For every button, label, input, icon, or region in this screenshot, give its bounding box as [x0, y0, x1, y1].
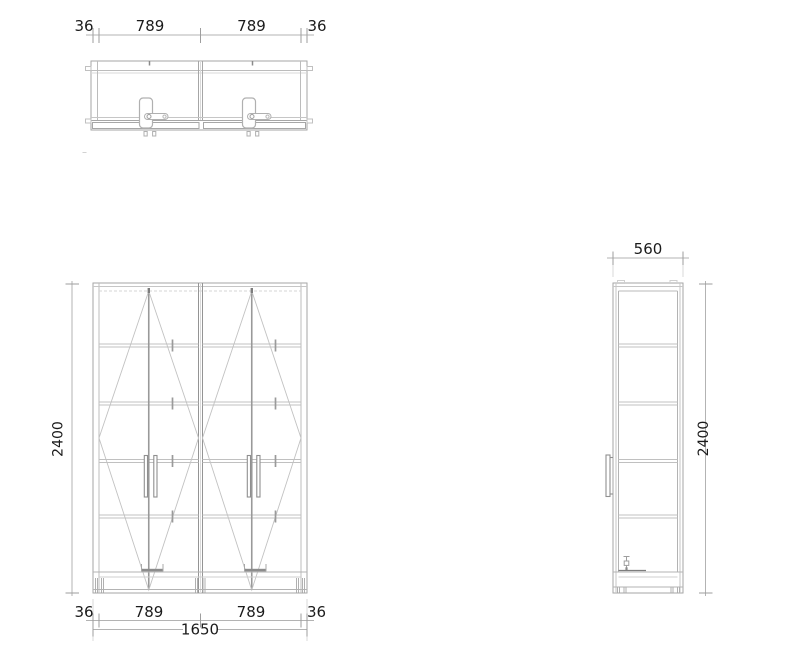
front-view [93, 283, 307, 593]
dimension-side-depth: 560 [607, 240, 689, 277]
leveler-foot-icon [624, 557, 630, 571]
dimension-side-height: 2400 [696, 281, 713, 596]
dim-label-top-door-left: 789 [136, 17, 165, 35]
side-feet [618, 587, 680, 593]
hinge-symbol-left [140, 98, 169, 128]
dim-label-bottom-door-left: 789 [135, 603, 164, 621]
dim-label-bottom-door-right: 789 [237, 603, 266, 621]
dimension-top-width: 36 789 789 36 [74, 17, 326, 43]
side-view [606, 281, 683, 594]
plan-doors [93, 123, 306, 129]
side-carcass [613, 281, 683, 594]
dim-label-total-width: 1650 [181, 621, 219, 639]
drawing-sheet: 36 789 789 36 2400 36 789 789 36 1650 [0, 0, 793, 666]
door-bottom-stops [142, 564, 267, 571]
dim-label-top-left-gap: 36 [74, 17, 93, 35]
dimension-front-height: 2400 [51, 281, 80, 596]
side-plinth [613, 571, 683, 588]
plan-carcass [91, 61, 307, 130]
technical-drawing-canvas: 36 789 789 36 2400 36 789 789 36 1650 [0, 0, 793, 666]
dim-label-front-height: 2400 [51, 421, 67, 457]
plan-view [86, 61, 313, 136]
dim-label-side-height: 2400 [696, 421, 712, 457]
dim-label-bottom-right-gap: 36 [307, 603, 326, 621]
dimension-bottom-width: 36 789 789 36 1650 [74, 599, 326, 641]
front-carcass [93, 283, 307, 593]
plan-handle-marks [144, 132, 259, 137]
side-shelf-lines [619, 344, 678, 518]
dim-label-top-right-gap: 36 [307, 17, 326, 35]
dim-label-side-depth: 560 [634, 240, 663, 258]
side-door-handle [606, 455, 613, 497]
dim-label-top-door-right: 789 [237, 17, 266, 35]
dim-label-bottom-left-gap: 36 [74, 603, 93, 621]
hinge-symbol-right [243, 98, 272, 128]
